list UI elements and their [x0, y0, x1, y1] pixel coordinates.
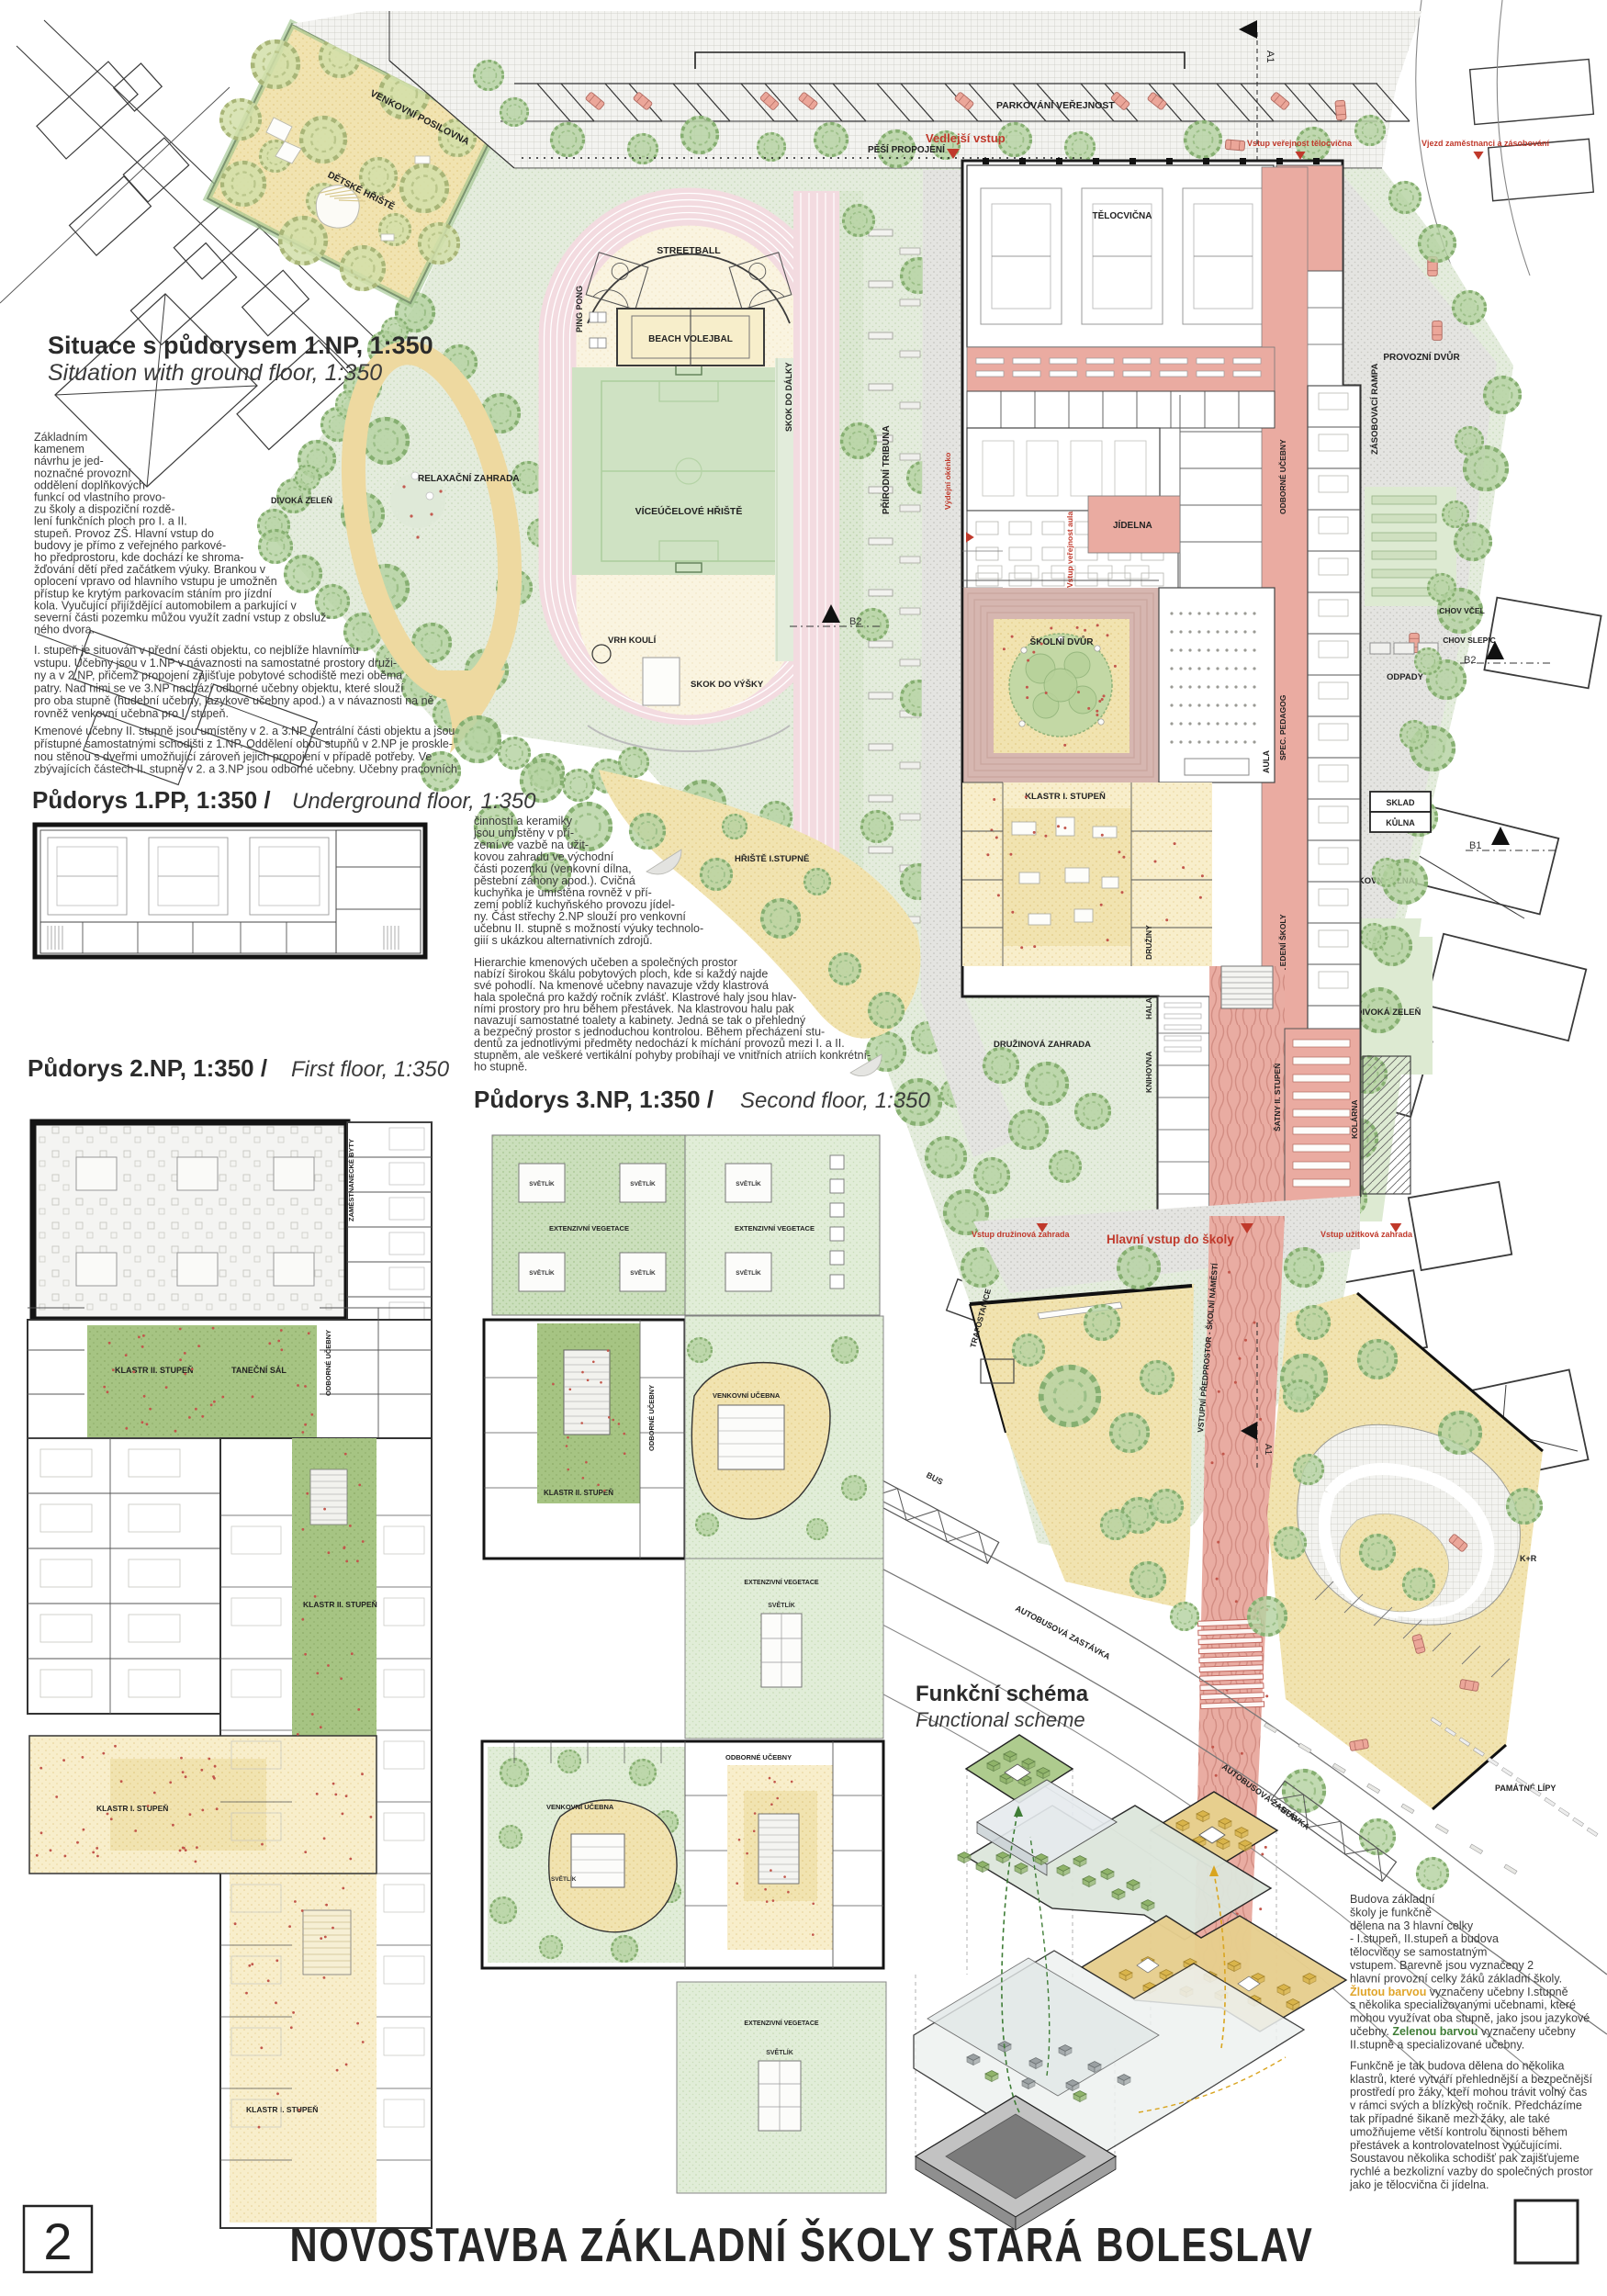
- svg-text:rychlé a bezkolizní vazby do s: rychlé a bezkolizní vazby do společných …: [1350, 2166, 1593, 2178]
- svg-text:Vedlejší vstup: Vedlejší vstup: [926, 131, 1006, 145]
- svg-text:lení funkčních ploch pro I. a: lení funkčních ploch pro I. a II.: [34, 515, 187, 528]
- svg-text:ODBORNÉ UČEBNY: ODBORNÉ UČEBNY: [1277, 439, 1287, 514]
- svg-text:HALA: HALA: [1144, 997, 1153, 1019]
- svg-text:Soustavou několika schodišť pa: Soustavou několika schodišť pak zajišťuj…: [1350, 2152, 1579, 2165]
- svg-text:KLASTR II. STUPEŇ: KLASTR II. STUPEŇ: [544, 1489, 613, 1497]
- svg-text:činností a keramiky: činností a keramiky: [474, 815, 573, 827]
- svg-text:s několika specializovanými uč: s několika specializovanými učebnami, kt…: [1350, 1998, 1576, 2011]
- svg-text:KLASTR I. STUPEŇ: KLASTR I. STUPEŇ: [1025, 791, 1106, 802]
- svg-text:ODBORNÉ UČEBNY: ODBORNÉ UČEBNY: [725, 1753, 792, 1761]
- svg-text:B2: B2: [849, 616, 861, 627]
- svg-text:školy je funkčně: školy je funkčně: [1350, 1906, 1432, 1919]
- svg-text:zemí ve vazbě na užit-: zemí ve vazbě na užit-: [474, 838, 589, 851]
- svg-text:pro oba stupně (hudební učebny: pro oba stupně (hudební učebny, jazykové…: [34, 694, 434, 707]
- svg-text:Budova základní: Budova základní: [1350, 1893, 1435, 1906]
- svg-text:učebny. Zelenou barvou vyznače: učebny. Zelenou barvou vyznačeny učebny: [1350, 2025, 1576, 2038]
- svg-text:B2: B2: [1464, 655, 1476, 666]
- svg-text:Vstup veřejnost aula: Vstup veřejnost aula: [1065, 512, 1074, 588]
- svg-text:DRUŽINOVÁ ZAHRADA: DRUŽINOVÁ ZAHRADA: [994, 1039, 1091, 1050]
- svg-text:návrhu je jed-: návrhu je jed-: [34, 455, 104, 467]
- svg-text:jako je tělocvična či jídelna.: jako je tělocvična či jídelna.: [1349, 2178, 1489, 2191]
- svg-text:dělena na 3 hlavní celky: dělena na 3 hlavní celky: [1350, 1919, 1474, 1932]
- svg-text:KLASTR I. STUPEŇ: KLASTR I. STUPEŇ: [246, 2104, 318, 2114]
- svg-text:PING PONG: PING PONG: [575, 286, 584, 332]
- svg-text:HŘIŠTĚ I.STUPNĚ: HŘIŠTĚ I.STUPNĚ: [735, 853, 809, 864]
- svg-text:mohou využívat oba stupně, jak: mohou využívat oba stupně, jako jsou jaz…: [1350, 2012, 1590, 2025]
- svg-text:SVĚTLÍK: SVĚTLÍK: [529, 1268, 555, 1277]
- svg-text:Půdorys 2.NP, 1:350 /: Půdorys 2.NP, 1:350 /: [28, 1054, 267, 1082]
- svg-text:EXTENZIVNÍ VEGETACE: EXTENZIVNÍ VEGETACE: [744, 1578, 818, 1586]
- svg-text:funkcí od vlastního provo-: funkcí od vlastního provo-: [34, 491, 165, 504]
- svg-text:přístupné samostatnými schodiš: přístupné samostatnými schodišti z 1.NP.…: [34, 737, 453, 750]
- svg-text:PROVOZNÍ DVŮR: PROVOZNÍ DVŮR: [1383, 350, 1460, 363]
- svg-text:ODPADY: ODPADY: [1387, 672, 1424, 682]
- svg-text:ho předprostoru, kde dochází k: ho předprostoru, kde dochází ke shroma-: [34, 551, 244, 564]
- svg-text:NOVOSTAVBA ZÁKLADNÍ ŠKOLY STAR: NOVOSTAVBA ZÁKLADNÍ ŠKOLY STARÁ BOLESLAV: [290, 2218, 1314, 2272]
- svg-text:oplocení vpravo od hlavního vs: oplocení vpravo od hlavního vstupu je um…: [34, 575, 277, 588]
- svg-text:A1: A1: [1264, 51, 1275, 62]
- svg-text:B1: B1: [1469, 840, 1481, 851]
- svg-text:EXTENZIVNÍ VEGETACE: EXTENZIVNÍ VEGETACE: [744, 2019, 818, 2027]
- svg-text:zemí poblíž kuchyňského provoz: zemí poblíž kuchyňského provozu jídel-: [474, 898, 675, 911]
- svg-text:JÍDELNA: JÍDELNA: [1113, 519, 1152, 531]
- svg-text:SKOK DO VÝŠKY: SKOK DO VÝŠKY: [691, 679, 764, 690]
- svg-text:TANEČNÍ SÁL: TANEČNÍ SÁL: [231, 1365, 287, 1375]
- svg-text:BEACH VOLEJBAL: BEACH VOLEJBAL: [648, 334, 733, 344]
- svg-text:patry. Nad nimi se ve 3.NP nac: patry. Nad nimi se ve 3.NP nachází odbor…: [34, 681, 404, 694]
- svg-text:SVĚTLÍK: SVĚTLÍK: [551, 1874, 577, 1883]
- svg-text:severní části pozemku můžou vy: severní části pozemku můžou využít zadní…: [34, 612, 330, 625]
- svg-text:DIVOKÁ ZELEŇ: DIVOKÁ ZELEŇ: [271, 495, 332, 505]
- svg-text:tak případné šikaně mezi žáky,: tak případné šikaně mezi žáky, ale také: [1350, 2112, 1550, 2125]
- svg-text:Underground floor, 1:350: Underground floor, 1:350: [292, 789, 536, 814]
- svg-text:části pozemku (venkovní dílna,: části pozemku (venkovní dílna,: [474, 862, 632, 875]
- svg-text:SKLAD: SKLAD: [1387, 798, 1415, 807]
- svg-text:Výdejní okénko: Výdejní okénko: [943, 453, 952, 510]
- svg-text:ného dvora.: ného dvora.: [34, 624, 95, 636]
- svg-text:SKOK DO DÁLKY: SKOK DO DÁLKY: [784, 362, 793, 432]
- svg-text:umožňujeme větší kontrolu činn: umožňujeme větší kontrolu činnosti během: [1350, 2125, 1568, 2138]
- svg-text:K+R: K+R: [1520, 1554, 1537, 1563]
- svg-text:KNIHOVNA: KNIHOVNA: [1144, 1052, 1153, 1093]
- svg-text:First floor, 1:350: First floor, 1:350: [291, 1057, 450, 1082]
- svg-text:kovou zahradu ve východní: kovou zahradu ve východní: [474, 850, 614, 863]
- svg-text:prostředí pro žáky, kteří moho: prostředí pro žáky, kteří mohou trávit v…: [1350, 2086, 1587, 2099]
- svg-text:I. stupeň je situován v přední: I. stupeň je situován v přední části obj…: [34, 644, 359, 657]
- svg-text:2: 2: [43, 2212, 72, 2270]
- svg-text:Funkční schéma: Funkční schéma: [916, 1682, 1089, 1706]
- svg-text:ODBORNÉ UČEBNY: ODBORNÉ UČEBNY: [324, 1330, 332, 1396]
- svg-text:budovy je přímo z veřejného pa: budovy je přímo z veřejného parkové-: [34, 539, 226, 552]
- svg-text:Functional scheme: Functional scheme: [916, 1708, 1085, 1731]
- svg-text:klastrů, které vytváří přehled: klastrů, které vytváří přehlednější a be…: [1350, 2073, 1593, 2086]
- svg-text:VEDENÍ ŠKOLY: VEDENÍ ŠKOLY: [1277, 914, 1287, 972]
- svg-text:PŘÍRODNÍ TRIBUNA: PŘÍRODNÍ TRIBUNA: [880, 425, 892, 514]
- svg-text:KLASTR I. STUPEŇ: KLASTR I. STUPEŇ: [96, 1803, 168, 1813]
- svg-text:EXTENZIVNÍ VEGETACE: EXTENZIVNÍ VEGETACE: [735, 1224, 815, 1232]
- svg-text:přístup ke krytým parkovacím s: přístup ke krytým parkovacím stáním pro …: [34, 587, 273, 600]
- svg-text:STREETBALL: STREETBALL: [657, 245, 721, 256]
- svg-text:SVĚTLÍK: SVĚTLÍK: [529, 1179, 555, 1187]
- svg-text:vstupu. Učebny jsou v 1.NP v n: vstupu. Učebny jsou v 1.NP v návaznosti …: [34, 657, 397, 670]
- svg-text:tělocvičny se samostatným: tělocvičny se samostatným: [1350, 1946, 1487, 1959]
- svg-text:VÍCEÚČELOVÉ HŘIŠTĚ: VÍCEÚČELOVÉ HŘIŠTĚ: [635, 505, 743, 517]
- svg-text:Půdorys 1.PP, 1:350 /: Půdorys 1.PP, 1:350 /: [32, 786, 271, 814]
- svg-text:A1: A1: [1263, 1444, 1273, 1456]
- svg-text:zu školy a dispoziční rozdě-: zu školy a dispoziční rozdě-: [34, 503, 175, 516]
- svg-text:nou stěnou s dveřmi umožňující: nou stěnou s dveřmi umožňující zároveň j…: [34, 750, 432, 763]
- svg-text:SPEC. PEDAGOG: SPEC. PEDAGOG: [1278, 694, 1287, 760]
- svg-text:vstupem. Barevně jsou vyznačen: vstupem. Barevně jsou vyznačeny 2: [1350, 1959, 1534, 1972]
- svg-text:stupněm, ale veškeré vertikáln: stupněm, ale veškeré vertikální pohyby p…: [474, 1049, 871, 1062]
- svg-text:CHOV SLEPIC: CHOV SLEPIC: [1443, 636, 1496, 645]
- svg-text:TĚLOCVIČNA: TĚLOCVIČNA: [1093, 209, 1152, 221]
- svg-text:ny a v 2.NP, přičemž propojení: ny a v 2.NP, přičemž propojení zajišťuje…: [34, 670, 402, 682]
- svg-text:rovněž venkovní učebna pro I.: rovněž venkovní učebna pro I. stupeň.: [34, 707, 229, 720]
- svg-text:zbývajících částech II. stupně: zbývajících částech II. stupně v 2. a 3.…: [34, 763, 457, 776]
- svg-text:EXTENZIVNÍ VEGETACE: EXTENZIVNÍ VEGETACE: [549, 1224, 629, 1232]
- svg-text:II.stupně a specializované uče: II.stupně a specializované učebny.: [1350, 2038, 1524, 2051]
- svg-text:Funkčně je tak budova dělena d: Funkčně je tak budova dělena do několika: [1350, 2059, 1565, 2072]
- svg-text:ZÁSOBOVACÍ RAMPA: ZÁSOBOVACÍ RAMPA: [1370, 363, 1380, 455]
- svg-text:DIVOKÁ ZELEŇ: DIVOKÁ ZELEŇ: [1356, 1007, 1422, 1018]
- svg-text:DRUŽINY: DRUŽINY: [1143, 925, 1153, 960]
- svg-text:Základním: Základním: [34, 431, 87, 444]
- svg-text:ODBORNÉ UČEBNY: ODBORNÉ UČEBNY: [647, 1385, 656, 1451]
- svg-text:Vstup veřejnost tělocvična: Vstup veřejnost tělocvična: [1247, 139, 1353, 148]
- svg-text:v rámci svých a blízkých roční: v rámci svých a blízkých ročník. Předchá…: [1350, 2099, 1582, 2112]
- svg-text:stupeň. Provoz ZŠ. Hlavní vstu: stupeň. Provoz ZŠ. Hlavní vstup do: [34, 526, 214, 540]
- svg-text:Půdorys 3.NP, 1:350 /: Půdorys 3.NP, 1:350 /: [474, 1086, 714, 1113]
- svg-text:přestávek a kontrolovatelnost: přestávek a kontrolovatelnost vyúčujícím…: [1350, 2139, 1562, 2152]
- svg-text:PARKOVÁNÍ VEŘEJNOST: PARKOVÁNÍ VEŘEJNOST: [996, 99, 1115, 111]
- svg-text:Second floor, 1:350: Second floor, 1:350: [740, 1088, 930, 1113]
- svg-text:KLASTR II. STUPEŇ: KLASTR II. STUPEŇ: [115, 1365, 194, 1375]
- svg-text:Situation with ground floor, 1: Situation with ground floor, 1:350: [48, 360, 382, 386]
- svg-text:VENKOVNÍ UČEBNA: VENKOVNÍ UČEBNA: [713, 1391, 781, 1400]
- svg-text:Vstup družinová zahrada: Vstup družinová zahrada: [972, 1230, 1071, 1239]
- svg-text:kola. Vyučující přijíždějící a: kola. Vyučující přijíždějící automobilem…: [34, 599, 298, 612]
- svg-text:ŠKOLNÍ DVŮR: ŠKOLNÍ DVŮR: [1030, 635, 1095, 647]
- svg-text:VRH KOULÍ: VRH KOULÍ: [608, 636, 657, 646]
- svg-text:kamenem: kamenem: [34, 443, 84, 456]
- svg-text:pěstební záhony apod.). Cvičná: pěstební záhony apod.). Cvičná: [474, 874, 635, 887]
- svg-text:- I.stupeň, II.stupeň a budova: - I.stupeň, II.stupeň a budova: [1350, 1932, 1499, 1945]
- svg-text:VENKOVNÍ UČEBNA: VENKOVNÍ UČEBNA: [546, 1803, 614, 1811]
- svg-text:KOLÁRNA: KOLÁRNA: [1350, 1100, 1359, 1140]
- svg-text:KLASTR II. STUPEŇ: KLASTR II. STUPEŇ: [303, 1599, 377, 1609]
- svg-text:Vstup užitková zahrada: Vstup užitková zahrada: [1320, 1230, 1413, 1239]
- svg-text:ŠATNY II. STUPEŇ: ŠATNY II. STUPEŇ: [1272, 1064, 1282, 1131]
- svg-text:oddělení doplňkových: oddělení doplňkových: [34, 478, 145, 491]
- svg-text:RELAXAČNÍ ZAHRADA: RELAXAČNÍ ZAHRADA: [418, 472, 520, 484]
- svg-text:ny. Část střechy 2.NP slouží p: ny. Část střechy 2.NP slouží pro venkovn…: [474, 909, 686, 923]
- svg-text:AULA: AULA: [1262, 750, 1271, 773]
- svg-text:SVĚTLÍK: SVĚTLÍK: [630, 1268, 656, 1277]
- svg-text:SVĚTLÍK: SVĚTLÍK: [736, 1179, 761, 1187]
- svg-text:Hlavní vstup do školy: Hlavní vstup do školy: [1107, 1232, 1234, 1246]
- svg-text:SVĚTLÍK: SVĚTLÍK: [768, 1601, 795, 1609]
- svg-text:učebnu II. stupně s možností v: učebnu II. stupně s možností výuky techn…: [474, 922, 703, 935]
- svg-text:CHOV VČEL: CHOV VČEL: [1439, 605, 1485, 615]
- svg-text:noznačné provozní: noznačné provozní: [34, 467, 131, 479]
- svg-text:Situace s půdorysem 1.NP, 1:35: Situace s půdorysem 1.NP, 1:350: [48, 332, 433, 359]
- svg-text:KŮLNA: KŮLNA: [1386, 817, 1415, 827]
- svg-text:hlavní provozní celky žáků zák: hlavní provozní celky žáků základní škol…: [1350, 1972, 1562, 1985]
- svg-text:SVĚTLÍK: SVĚTLÍK: [630, 1179, 656, 1187]
- svg-text:ho stupně.: ho stupně.: [474, 1060, 527, 1073]
- svg-text:kuchyňka je umístěna rovněž v: kuchyňka je umístěna rovněž v pří-: [474, 886, 652, 899]
- svg-text:Kmenové učebny II. stupně jsou: Kmenové učebny II. stupně jsou umístěny …: [34, 725, 455, 737]
- svg-text:giií s ukázkou alternativních: giií s ukázkou alternativních zdrojů.: [474, 934, 653, 947]
- svg-text:SVĚTLÍK: SVĚTLÍK: [736, 1268, 761, 1277]
- svg-text:jsou umístěny v pří-: jsou umístěny v pří-: [473, 827, 574, 839]
- svg-text:SVĚTLÍK: SVĚTLÍK: [766, 2048, 793, 2056]
- svg-text:žďování dětí před začátkem výu: žďování dětí před začátkem výuky. Branko…: [34, 563, 266, 576]
- svg-text:Žlutou barvou vyznačeny učebny: Žlutou barvou vyznačeny učebny I.stupně: [1350, 1985, 1568, 1998]
- svg-text:Vjezd zaměstnanci a zásobování: Vjezd zaměstnanci a zásobování: [1422, 139, 1550, 148]
- svg-text:ZAMĚSTNANECKÉ BYTY: ZAMĚSTNANECKÉ BYTY: [347, 1139, 355, 1221]
